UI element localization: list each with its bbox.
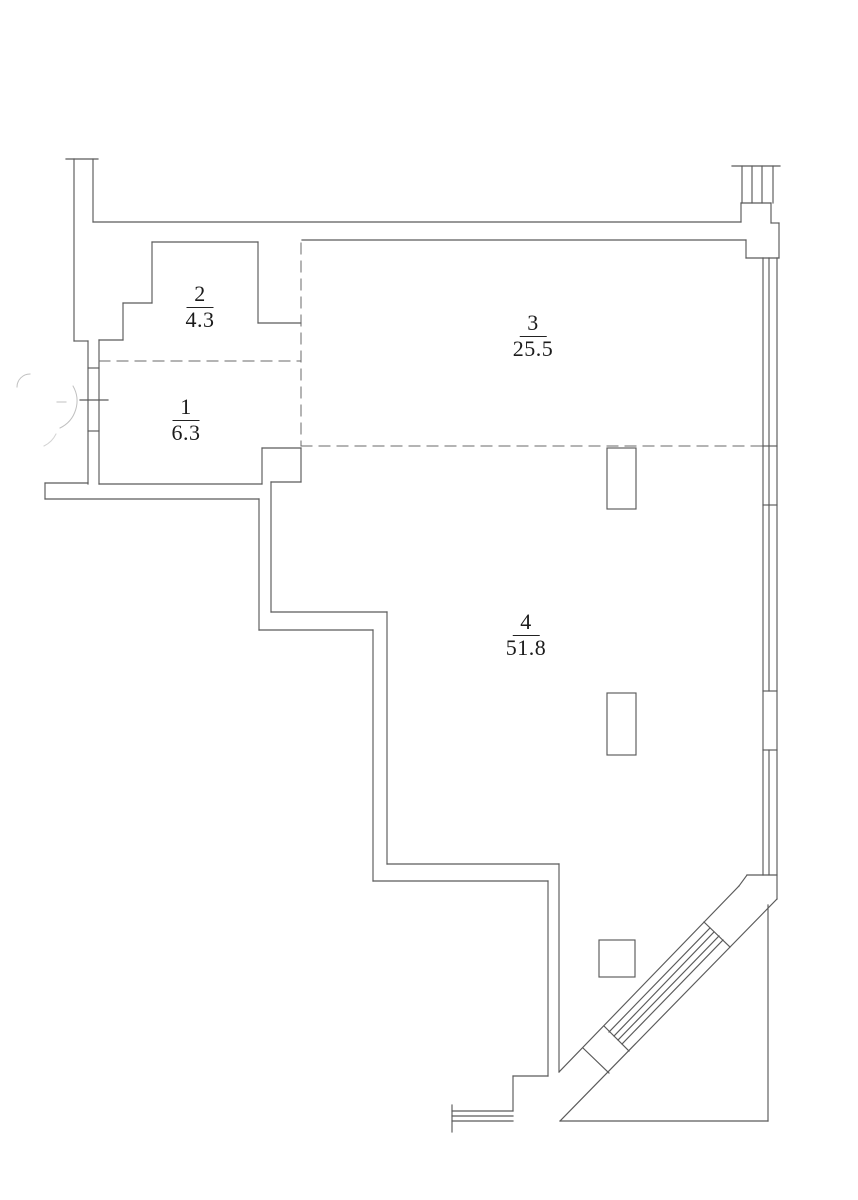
room4-stepped-wall bbox=[259, 482, 559, 1111]
room-2-area: 4.3 bbox=[186, 309, 215, 332]
door-swing-arc bbox=[17, 374, 77, 446]
room-4-number: 4 bbox=[512, 611, 540, 636]
entry-threshold bbox=[452, 1105, 513, 1132]
room-1-area: 6.3 bbox=[172, 422, 201, 445]
left-window-wall bbox=[80, 340, 108, 484]
partition-pier bbox=[262, 448, 301, 484]
room-3-area: 25.5 bbox=[513, 338, 554, 361]
room-3-label: 3 25.5 bbox=[513, 312, 554, 361]
top-right-pier bbox=[732, 166, 780, 258]
room3-top-wall bbox=[302, 240, 746, 258]
floor-plan-page: 1 6.3 2 4.3 3 25.5 4 51.8 bbox=[0, 0, 858, 1200]
top-left-wall-stub bbox=[66, 159, 98, 341]
right-window-wall bbox=[747, 258, 777, 899]
room1-south-wall bbox=[45, 483, 262, 499]
room-4-area: 51.8 bbox=[506, 637, 547, 660]
room-1-label: 1 6.3 bbox=[172, 396, 201, 445]
room-2-number: 2 bbox=[186, 283, 214, 308]
room-2-label: 2 4.3 bbox=[186, 283, 215, 332]
room-3-number: 3 bbox=[519, 312, 547, 337]
room-1-number: 1 bbox=[172, 396, 200, 421]
floor-plan-drawing bbox=[0, 0, 858, 1200]
columns bbox=[599, 448, 636, 977]
stair-bay bbox=[559, 875, 777, 1121]
room-4-label: 4 51.8 bbox=[506, 611, 547, 660]
